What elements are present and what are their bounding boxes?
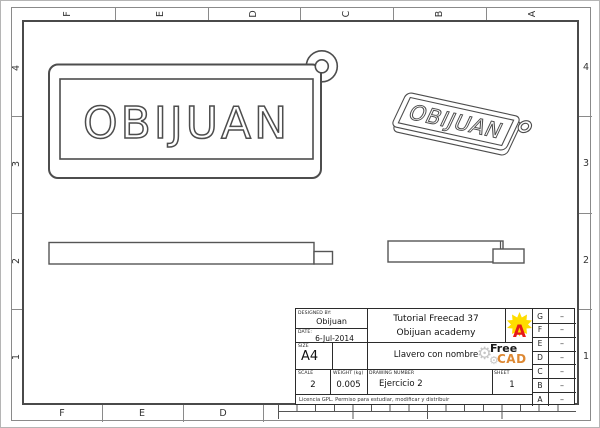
titleblock-line: [532, 378, 576, 379]
titleblock-line: [296, 394, 532, 395]
title-block: DESIGNED BY: Obijuan DATE: 6-Jul-2014 SI…: [295, 308, 575, 405]
project-line1: Tutorial Freecad 37: [367, 314, 505, 324]
titleblock-line: [532, 351, 576, 352]
revision-mark: –: [548, 395, 576, 404]
titleblock-line: [532, 392, 576, 393]
side-ring-tab: [314, 252, 333, 265]
red-a-icon: A: [513, 322, 527, 341]
side-body: [49, 243, 314, 265]
view-isometric: OBIJUAN: [389, 92, 535, 158]
project-line2: Obijuan academy: [367, 328, 505, 338]
revision-mark: –: [548, 325, 576, 334]
side-ring-tab: [493, 249, 524, 263]
revision-letter: E: [532, 339, 548, 348]
revision-letter: G: [532, 312, 548, 321]
revision-letter: B: [532, 381, 548, 390]
titleblock-line: [532, 364, 576, 365]
date-value: 6-Jul-2014: [302, 334, 367, 343]
titleblock-line: [532, 337, 576, 338]
revision-letter: D: [532, 353, 548, 362]
revision-mark: –: [548, 312, 576, 321]
obijuan-academy-logo: A: [506, 310, 533, 341]
view-side-right: [388, 241, 524, 263]
revision-letter: F: [532, 325, 548, 334]
titleblock-line: [332, 342, 333, 369]
revision-letter: C: [532, 367, 548, 376]
view-front: OBIJUAN: [49, 51, 337, 178]
weight-value: 0.005: [330, 380, 367, 390]
revision-mark: –: [548, 381, 576, 390]
side-body: [388, 241, 503, 262]
sheet-value: 1: [492, 380, 532, 390]
license-text: Licencia GPL. Permiso para estudiar, mod…: [299, 397, 449, 403]
titleblock-line: [532, 323, 576, 324]
freecad-logo: ⚙ ⚙ Free CAD: [482, 341, 530, 375]
view-side-left: [49, 243, 333, 265]
freecad-logo-cad: CAD: [497, 352, 527, 366]
revision-mark: –: [548, 339, 576, 348]
designed-by-label: DESIGNED BY:: [298, 311, 331, 316]
revision-mark: –: [548, 353, 576, 362]
revision-letter: A: [532, 395, 548, 404]
designed-by-value: Obijuan: [296, 317, 367, 326]
scale-label: SCALE: [298, 371, 313, 376]
key-ring-hole: [315, 60, 328, 73]
revision-mark: –: [548, 367, 576, 376]
engraved-name-front: OBIJUAN: [83, 98, 290, 149]
size-label: SIZE: [298, 344, 309, 349]
scale-value: 2: [296, 380, 330, 390]
size-value: A4: [301, 349, 318, 364]
weight-label: WEIGHT (kg): [333, 371, 363, 376]
drawing-number-label: DRAWING NUMBER: [369, 371, 414, 376]
techdraw-sheet: F E D C B A F E D 4 3 2 1 4 3 2 1 OBIJUA…: [0, 0, 600, 428]
drawing-number-value: Ejercicio 2: [379, 379, 423, 389]
